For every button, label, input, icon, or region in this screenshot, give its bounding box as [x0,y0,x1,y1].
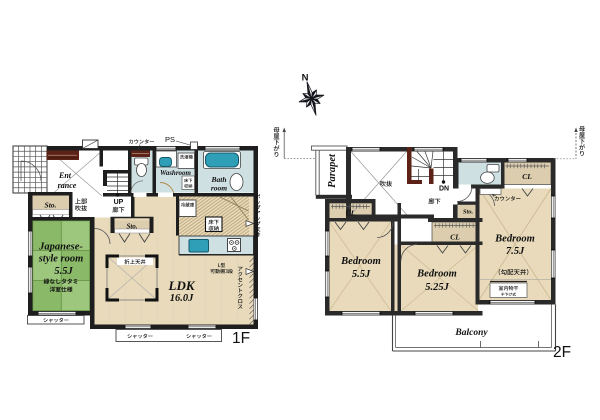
svg-text:Bedroom: Bedroom [494,234,535,245]
svg-text:Washroom: Washroom [160,169,192,177]
svg-text:Parapet: Parapet [327,153,338,188]
svg-text:Bedroom: Bedroom [340,256,381,267]
svg-text:rance: rance [58,181,77,190]
svg-text:Balcony: Balcony [454,328,488,338]
svg-text:5.25J: 5.25J [425,282,449,293]
svg-text:DN: DN [439,186,449,193]
svg-text:Sto.: Sto. [463,209,474,216]
svg-text:1F: 1F [232,330,250,347]
svg-text:7.5J: 7.5J [506,246,525,257]
svg-text:Ent: Ent [58,171,72,180]
svg-text:style room: style room [38,254,84,265]
svg-text:16.0J: 16.0J [170,293,194,304]
svg-text:PS: PS [165,135,175,144]
svg-text:CL: CL [522,172,532,181]
svg-text:5.5J: 5.5J [54,266,73,277]
svg-text:LDK: LDK [168,278,196,293]
svg-text:N: N [302,73,309,84]
svg-text:CL: CL [346,209,356,218]
svg-text:2F: 2F [553,344,571,361]
svg-text:Japanese-: Japanese- [38,242,83,253]
svg-text:CL: CL [450,233,460,242]
svg-text:5.5J: 5.5J [352,269,371,280]
svg-text:UP: UP [114,199,124,206]
svg-text:Bedroom: Bedroom [416,269,457,280]
svg-text:Sto.: Sto. [126,223,137,231]
svg-text:room: room [211,184,227,193]
svg-text:Sto.: Sto. [45,201,57,210]
